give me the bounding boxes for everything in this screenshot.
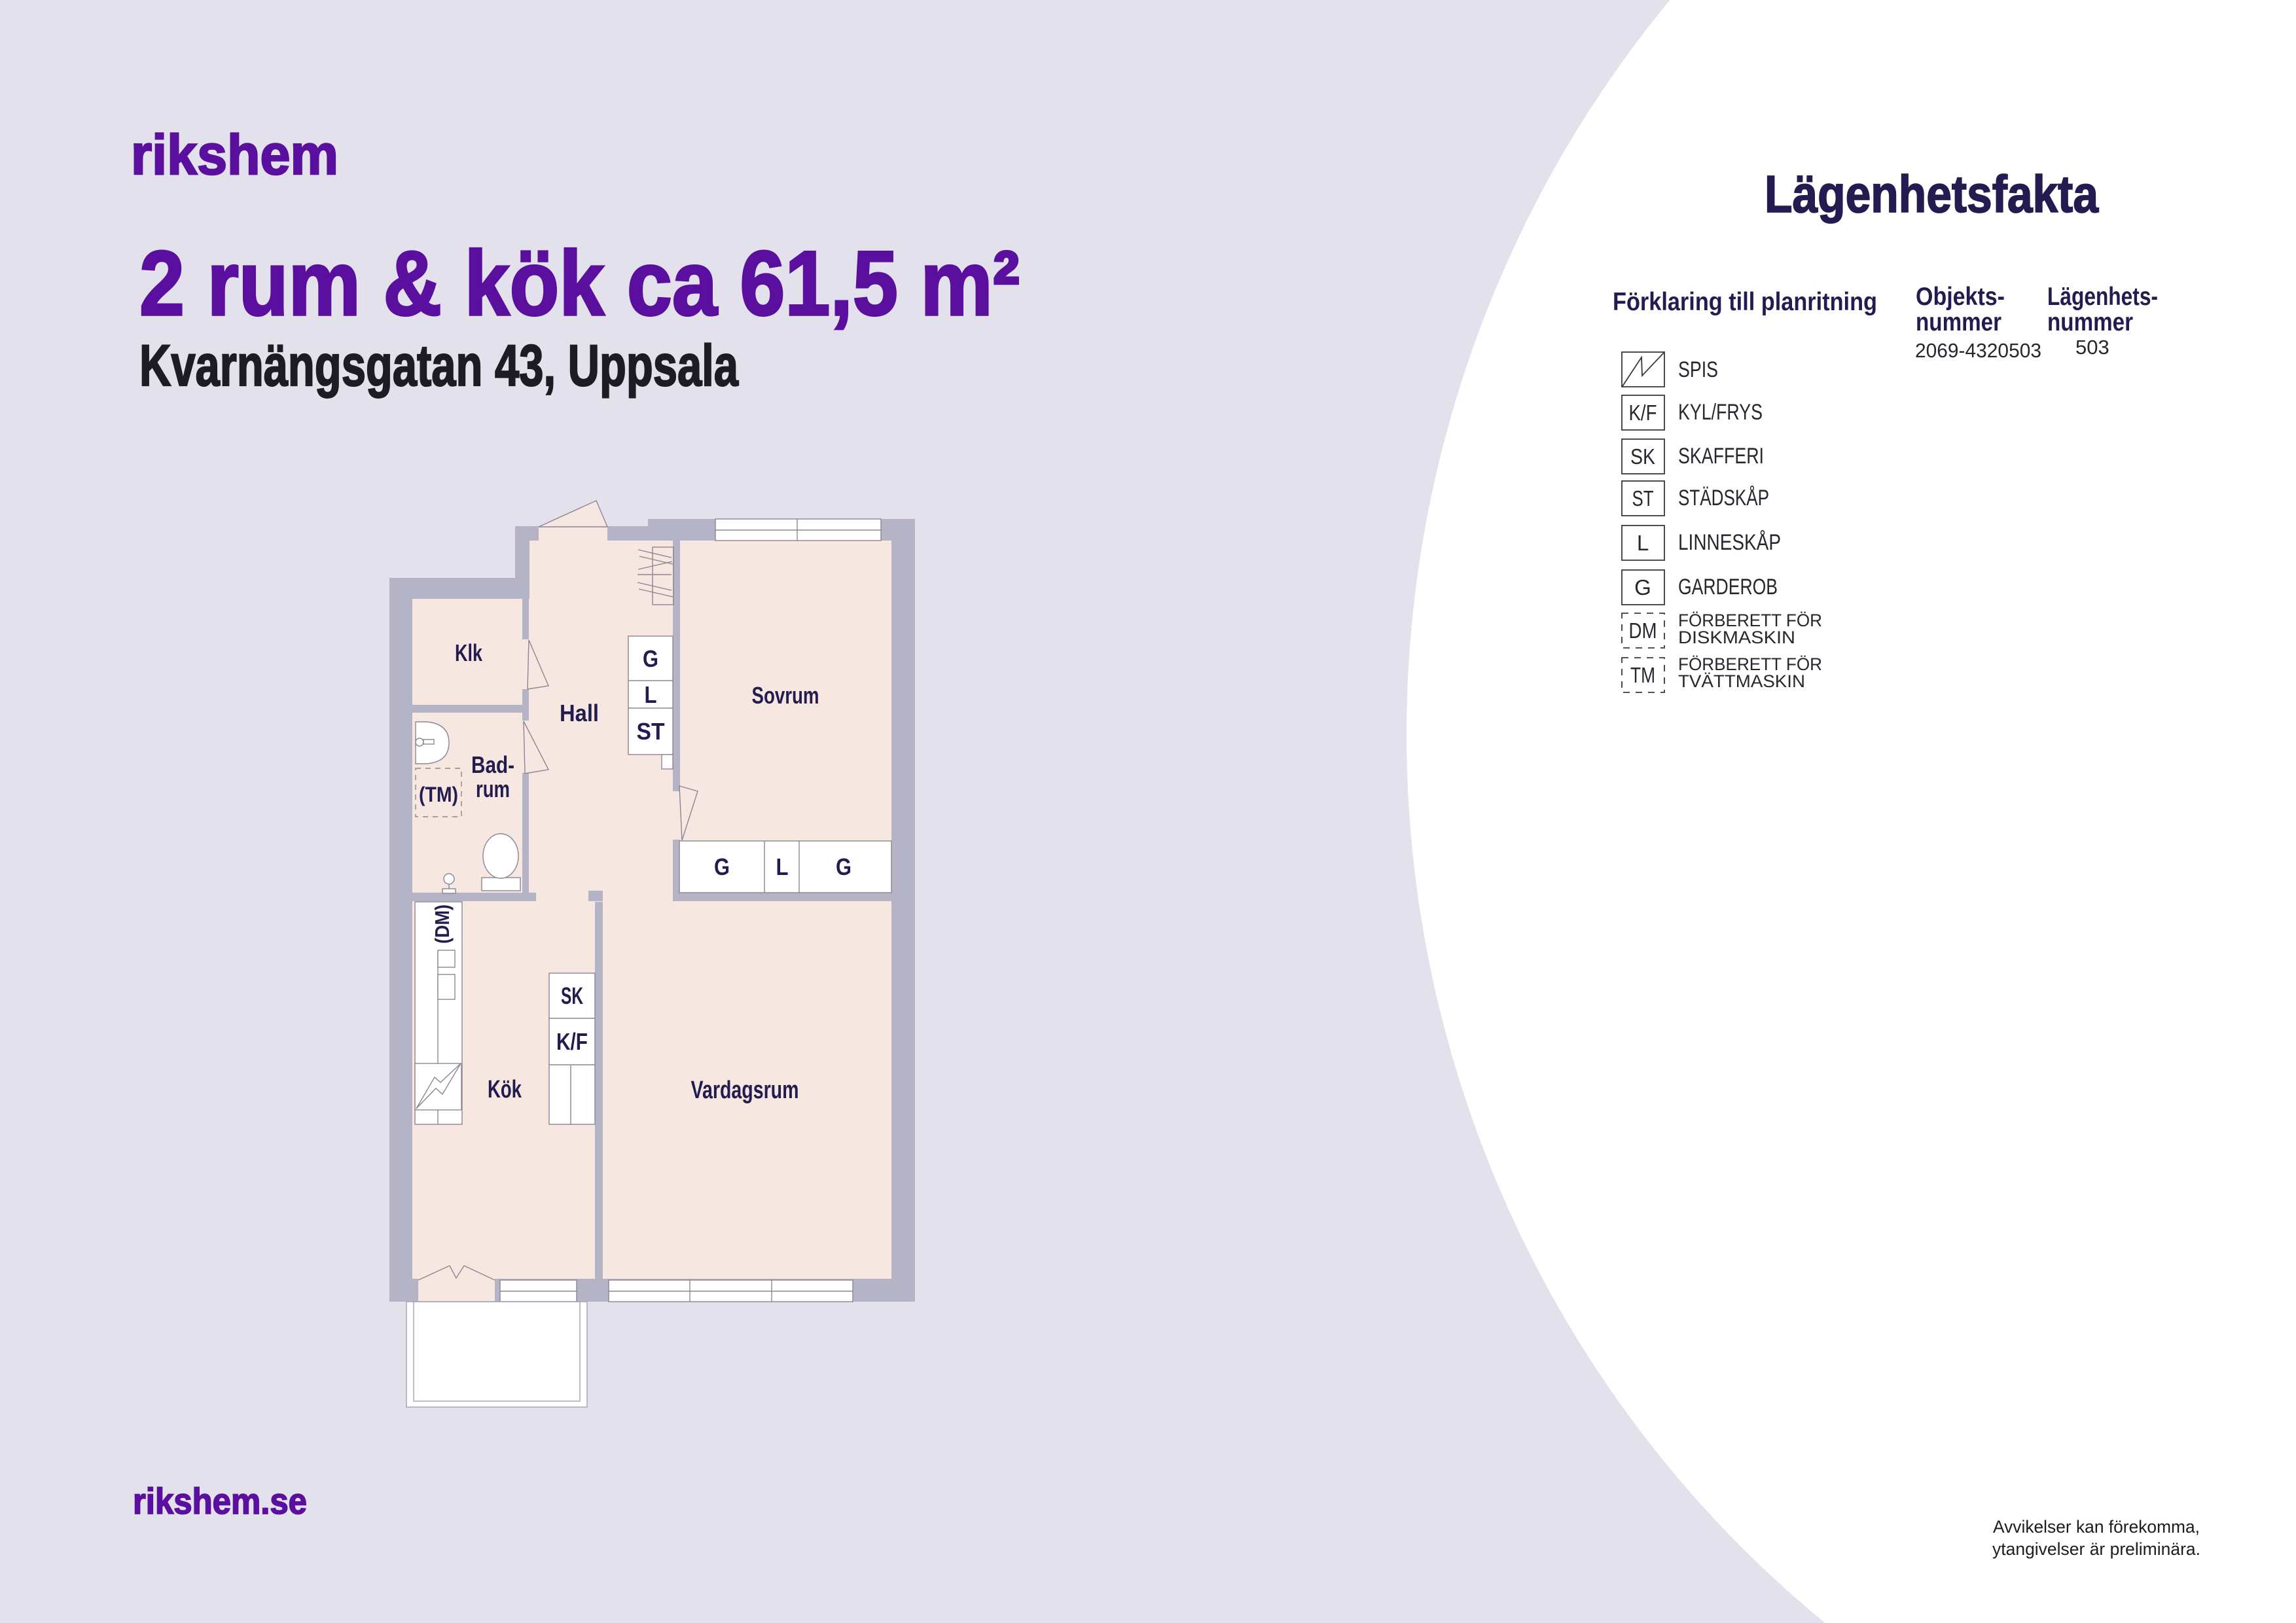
svg-text:DISKMASKIN: DISKMASKIN: [1678, 628, 1795, 647]
svg-text:KYL/FRYS: KYL/FRYS: [1678, 400, 1763, 425]
svg-text:SPIS: SPIS: [1678, 357, 1718, 382]
svg-text:SKAFFERI: SKAFFERI: [1678, 444, 1764, 469]
svg-text:Sovrum: Sovrum: [752, 682, 819, 709]
svg-text:Kök: Kök: [488, 1076, 522, 1103]
svg-text:TVÄTTMASKIN: TVÄTTMASKIN: [1678, 671, 1805, 691]
svg-text:Lägenhetsfakta: Lägenhetsfakta: [1765, 165, 2098, 223]
svg-text:Lägenhets-: Lägenhets-: [2047, 283, 2158, 311]
svg-text:STÄDSKÅP: STÄDSKÅP: [1678, 486, 1769, 510]
svg-text:Bad-: Bad-: [471, 751, 514, 778]
svg-text:SK: SK: [561, 982, 583, 1009]
svg-text:rikshem: rikshem: [131, 124, 338, 187]
svg-text:DM: DM: [1629, 618, 1657, 643]
svg-text:GARDEROB: GARDEROB: [1678, 575, 1778, 599]
svg-text:503: 503: [2075, 336, 2109, 359]
svg-text:G: G: [836, 853, 852, 880]
svg-text:ytangivelser är preliminära.: ytangivelser är preliminära.: [1992, 1539, 2200, 1559]
svg-text:G: G: [714, 853, 730, 880]
svg-text:G: G: [1634, 575, 1651, 599]
svg-text:2 rum & kök ca 61,5 m²: 2 rum & kök ca 61,5 m²: [139, 232, 1020, 334]
svg-text:nummer: nummer: [1916, 308, 2001, 336]
svg-text:nummer: nummer: [2047, 308, 2133, 336]
svg-text:K/F: K/F: [1629, 401, 1657, 425]
svg-text:L: L: [645, 681, 657, 708]
svg-text:ST: ST: [1632, 486, 1654, 510]
svg-text:rum: rum: [476, 776, 510, 802]
svg-text:G: G: [643, 645, 658, 672]
svg-text:L: L: [1637, 531, 1649, 555]
svg-text:L: L: [776, 853, 789, 880]
svg-text:(TM): (TM): [419, 783, 458, 806]
svg-text:Klk: Klk: [455, 639, 483, 666]
svg-text:SK: SK: [1630, 444, 1655, 469]
svg-text:Vardagsrum: Vardagsrum: [691, 1077, 799, 1104]
svg-text:rikshem.se: rikshem.se: [133, 1480, 307, 1522]
svg-text:Kvarnängsgatan 43, Uppsala: Kvarnängsgatan 43, Uppsala: [139, 332, 739, 398]
svg-text:Avvikelser kan förekomma,: Avvikelser kan förekomma,: [1993, 1517, 2200, 1537]
svg-text:(DM): (DM): [431, 904, 454, 944]
svg-text:LINNESKÅP: LINNESKÅP: [1678, 530, 1781, 555]
svg-text:Förklaring till planritning: Förklaring till planritning: [1613, 288, 1877, 316]
svg-text:TM: TM: [1630, 663, 1655, 687]
svg-text:ST: ST: [637, 718, 665, 745]
svg-text:2069-4320503: 2069-4320503: [1915, 339, 2041, 362]
svg-text:Objekts-: Objekts-: [1916, 283, 2005, 311]
svg-text:K/F: K/F: [556, 1028, 588, 1055]
svg-text:Hall: Hall: [560, 700, 599, 726]
